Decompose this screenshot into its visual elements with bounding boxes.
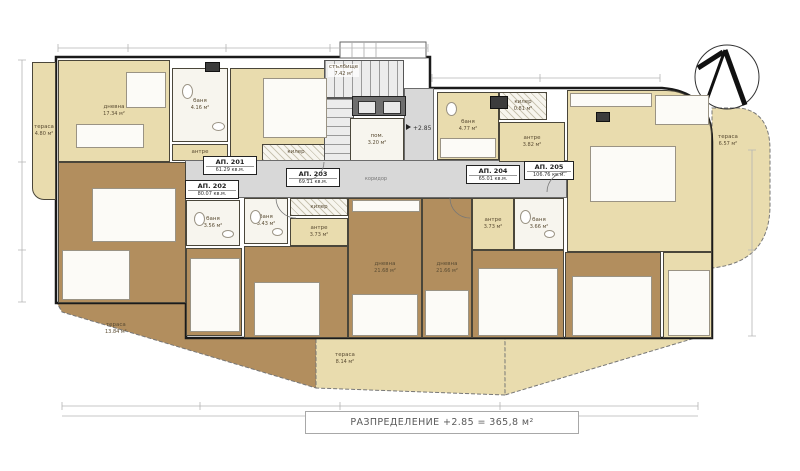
toilet <box>446 102 457 116</box>
room-label: тераса <box>34 124 54 131</box>
terrace-southeast <box>505 338 695 395</box>
room-label: килер <box>287 149 304 156</box>
terrace-south-center <box>316 338 505 395</box>
sofa <box>425 290 469 336</box>
shaft <box>596 112 610 122</box>
apartment-tag-202: АП. 20280.07 кв.м. <box>185 180 239 199</box>
room-hall-204: антре3.73 м² <box>472 198 514 250</box>
room-label: антре <box>310 225 329 232</box>
room-label: килер <box>310 204 327 211</box>
sink <box>544 230 555 238</box>
plan-title: РАЗПРЕДЕЛЕНИЕ +2.85 = 365,8 м² <box>350 417 533 428</box>
apartment-tag-204: АП. 20465.01 кв.м. <box>466 165 520 184</box>
room-label: антре <box>191 149 208 156</box>
bed <box>263 78 327 138</box>
kitchen-counter <box>352 200 420 212</box>
terrace-label-s: тераса8.14 м² <box>335 352 355 365</box>
dining-table <box>590 146 676 202</box>
bed <box>478 268 558 336</box>
porch-steps <box>352 42 376 58</box>
room-area: 4.77 м² <box>459 126 478 132</box>
room-label: дневна <box>103 104 125 111</box>
room-area: 4.80 м² <box>34 131 54 137</box>
corridor-label: коридор <box>365 176 387 182</box>
room-label: килер <box>514 99 533 106</box>
room-label: баня <box>191 98 210 105</box>
room-area: 3.82 м² <box>523 142 542 148</box>
room-area: 17.34 м² <box>103 111 125 117</box>
room-closet-203: килер <box>290 198 348 216</box>
entrance-porch <box>340 42 426 58</box>
apartment-tag-201: АП. 20161.29 кв.м. <box>203 156 257 175</box>
room-machine: пом.3.20 м² <box>350 118 404 162</box>
stairs-upper-flight <box>324 60 404 98</box>
dining-table <box>92 188 176 242</box>
toilet <box>520 210 531 224</box>
sink <box>272 228 283 236</box>
sink <box>212 122 225 131</box>
bed <box>572 276 652 336</box>
floor-plan: тераса4.80 м² дневна17.34 м² баня4.16 м²… <box>0 0 800 471</box>
room-label: баня <box>530 217 549 224</box>
terrace-east-curved <box>712 108 770 268</box>
room-label: антре <box>484 217 503 224</box>
apartment-tag-205: АП. 205106.76 кв.м. <box>524 161 574 180</box>
terrace-label-sw: тераса13.84 м² <box>105 322 127 335</box>
shaft <box>205 62 220 72</box>
shaft <box>490 96 508 109</box>
room-hall-205: антре3.82 м² <box>499 122 565 162</box>
title-bar: РАЗПРЕДЕЛЕНИЕ +2.85 = 365,8 м² <box>305 411 579 434</box>
room-hall-203: антре3.73 м² <box>290 218 348 246</box>
bed <box>668 270 710 336</box>
toilet <box>194 212 205 226</box>
room-area: 3.56 м² <box>204 223 223 229</box>
room-area: 21.66 м² <box>436 268 458 274</box>
room-bath-204: баня3.66 м² <box>514 198 564 250</box>
room-label: дневна <box>374 261 396 268</box>
room-area: 3.66 м² <box>530 224 549 230</box>
room-area: 3.73 м² <box>484 224 503 230</box>
bed <box>190 258 240 332</box>
sofa <box>655 95 709 125</box>
elevator-car <box>383 101 401 114</box>
sofa <box>62 250 130 300</box>
room-area: 0.81 м² <box>514 106 533 112</box>
sofa <box>352 294 418 336</box>
room-label: баня <box>459 119 478 126</box>
sofa <box>76 124 144 148</box>
dining-table <box>126 72 166 108</box>
elevator-car <box>358 101 376 114</box>
room-label: антре <box>523 135 542 142</box>
bed <box>254 282 320 336</box>
kitchen-counter <box>570 93 652 107</box>
sink <box>222 230 234 238</box>
level-mark: +2.85 <box>406 124 431 132</box>
room-label: дневна <box>436 261 458 268</box>
room-area: 4.16 м² <box>191 105 210 111</box>
terrace-label-e: тераса6.57 м² <box>718 134 738 147</box>
apartment-tag-203: АП. 20369.11 кв.м. <box>286 168 340 187</box>
bathtub <box>440 138 496 158</box>
room-area: 3.43 м² <box>257 221 276 227</box>
room-closet-202: килер <box>262 144 330 161</box>
room-area: 21.68 м² <box>374 268 396 274</box>
room-label: баня <box>204 216 223 223</box>
toilet <box>182 84 193 99</box>
room-terrace-left: тераса4.80 м² <box>32 62 56 200</box>
elevator-shaft <box>352 96 406 116</box>
room-area: 3.73 м² <box>310 232 329 238</box>
toilet <box>250 210 261 224</box>
